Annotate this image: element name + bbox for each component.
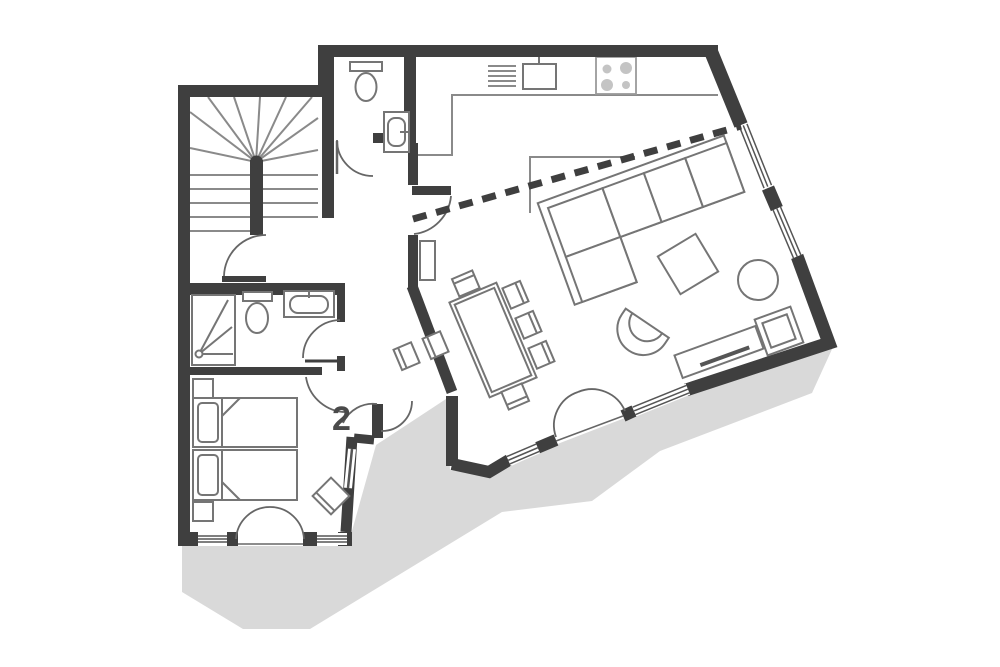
bed-1	[193, 398, 297, 447]
floorplan-page: 2	[0, 0, 1000, 667]
bathroom-basin	[284, 291, 334, 317]
window-bedroom-east	[348, 449, 352, 488]
unit-label: 2	[332, 400, 351, 438]
kitchen-tall-unit	[420, 241, 435, 280]
floorplan-drawing: 2	[0, 0, 1000, 667]
window-bedroom-left	[198, 533, 227, 545]
kitchen-hob	[596, 57, 636, 94]
side-table-round	[738, 260, 778, 300]
kitchen-door-leaf	[412, 186, 451, 195]
wc-basin	[384, 112, 409, 152]
shower	[192, 295, 235, 365]
nightstand-bottom	[193, 502, 213, 521]
stair-newel-wall	[250, 156, 263, 236]
nightstand-top	[193, 379, 213, 398]
window-bedroom-right	[317, 533, 347, 545]
bed-2	[193, 450, 297, 500]
hall-door-leaf	[222, 276, 266, 282]
